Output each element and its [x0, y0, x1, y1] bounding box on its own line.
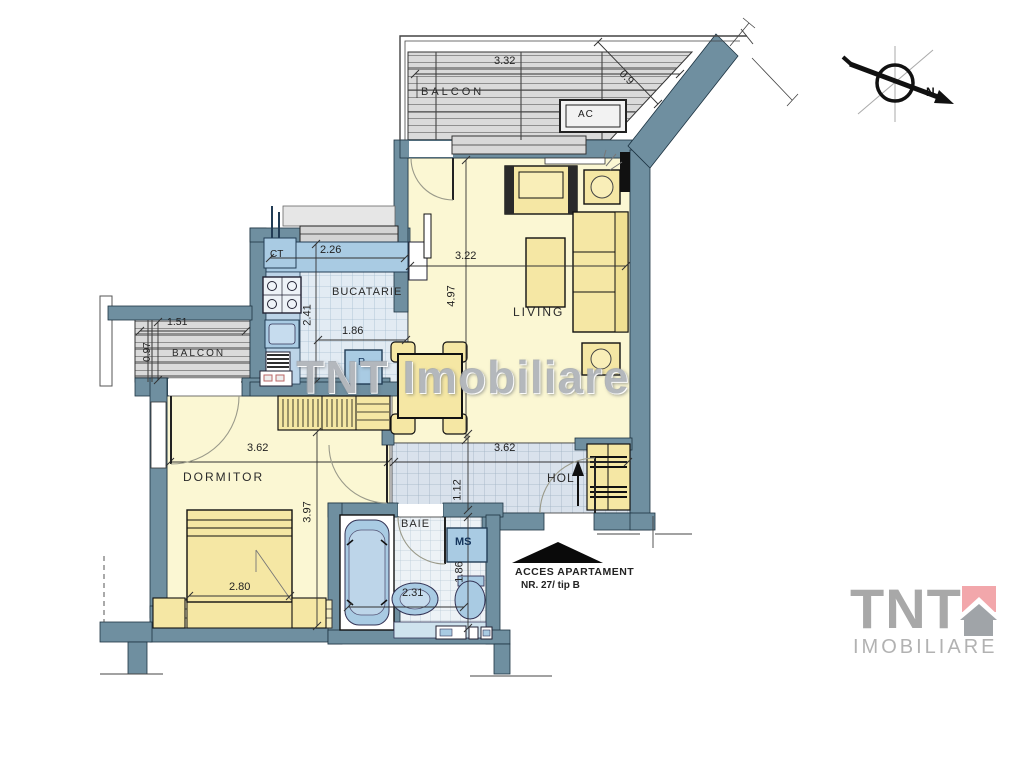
bedroom-side-window: [151, 402, 166, 468]
living-depth-dim: 4.97: [447, 285, 458, 306]
bathroom-label: BAIE: [401, 519, 430, 530]
kitchen-label: BUCATARIE: [332, 287, 402, 298]
intercom-box: [260, 371, 292, 386]
armchair: [505, 166, 577, 214]
bedro om-width-dim: 3.62: [247, 443, 268, 454]
bathtub: [340, 515, 394, 630]
balcony-left-width-dim: 1.51: [167, 317, 187, 328]
living-label: LIVING: [513, 306, 564, 318]
window-radiator: [545, 158, 605, 164]
sofa: [573, 212, 628, 332]
bed-width-dim: 2.80: [229, 582, 250, 593]
logo-title: TNT: [850, 576, 962, 641]
watermark-text: TNT Imobiliare: [296, 350, 629, 404]
bedroom-depth-dim: 3.97: [303, 501, 314, 522]
kitchen-depth-dim: 2.41: [303, 304, 314, 325]
hall-width-dim: 3.62: [494, 443, 515, 454]
coffee-table: [526, 238, 565, 307]
access-triangle: [512, 542, 603, 563]
logo-subtitle: IMOBILIARE: [853, 636, 997, 659]
radiator: [266, 352, 290, 372]
balcony-top-label: BALCON: [421, 87, 484, 98]
tv-unit: [424, 214, 431, 258]
kitchen-width-dim: 2.26: [320, 245, 341, 256]
access-note-line1: ACCES APARTAMENT: [515, 566, 634, 578]
hall-label: HOL: [547, 472, 575, 484]
bathroom-width-dim: 2.31: [402, 588, 423, 599]
bathroom-counter: [394, 622, 492, 639]
living-width-dim: 3.22: [455, 251, 476, 262]
hall-depth-dim: 1.12: [453, 479, 464, 500]
compass-north-label: N: [926, 85, 935, 99]
bed: [187, 510, 292, 628]
balcony-top-width-dim: 3.32: [494, 56, 515, 67]
boiler-label: CT: [270, 250, 283, 260]
access-note-line2: NR. 27/ tip B: [521, 580, 580, 591]
kitchen-opening-dim: 1.86: [342, 326, 363, 337]
compass-icon: [843, 46, 954, 122]
washing-machine-label: MS: [455, 537, 472, 548]
stove: [263, 277, 301, 313]
nightstand-left: [153, 598, 185, 628]
floor-plan-canvas: BALCON 3.32 0.9 AC BUCATARIE 2.26 2.41 1…: [0, 0, 1024, 768]
hall-closet: [587, 444, 630, 510]
balcony-left-depth-dim: 0.97: [143, 342, 153, 361]
balcony-left-label: BALCON: [172, 349, 225, 359]
kitchen-sink: [265, 320, 299, 348]
bedroom-label: DORMITOR: [183, 471, 264, 483]
ac-label: AC: [578, 110, 594, 120]
bathroom-depth-dim: 1.86: [455, 561, 466, 582]
nightstand-right: [292, 598, 326, 628]
logo-house-icon: [956, 586, 1001, 636]
kitchen-outer-sill: [283, 206, 395, 226]
